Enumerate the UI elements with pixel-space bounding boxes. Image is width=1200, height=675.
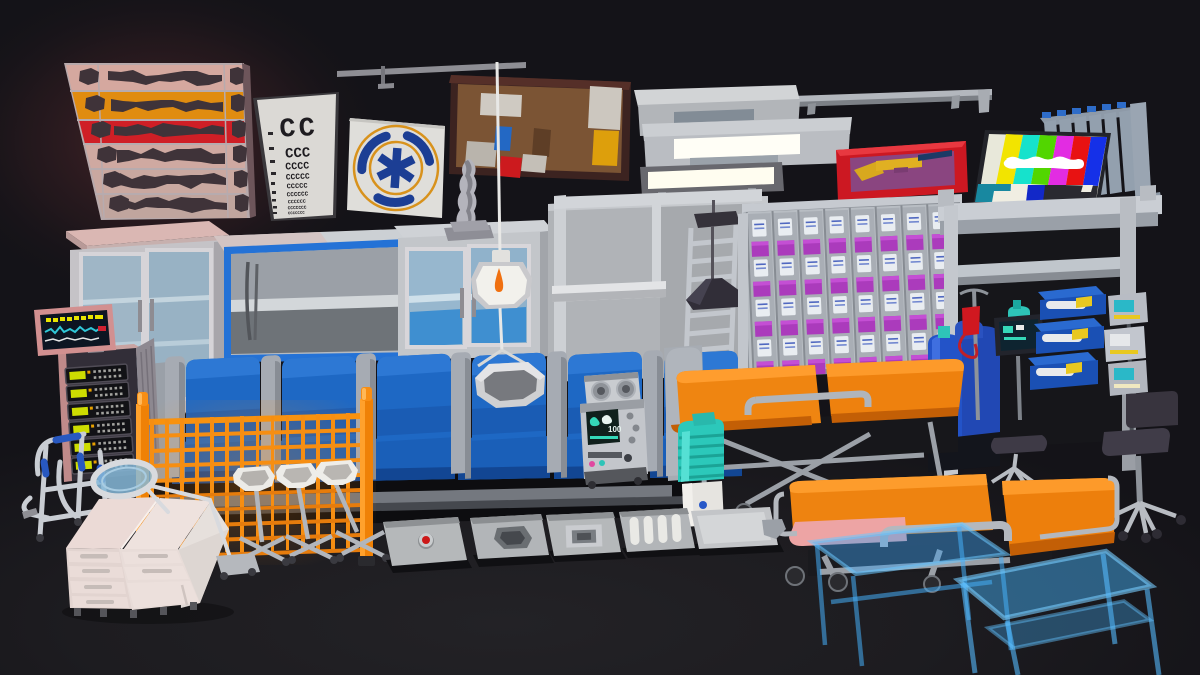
svg-text:CCCCCCC: CCCCCCC	[288, 205, 307, 212]
svg-text:CC: CC	[279, 114, 319, 146]
svg-text:CCC: CCC	[285, 145, 311, 162]
svg-text:CCCCC: CCCCC	[286, 172, 311, 182]
svg-text:CCCCCCC: CCCCCCC	[288, 212, 306, 217]
svg-text:CCCCCC: CCCCCC	[288, 199, 306, 206]
svg-text:100: 100	[608, 425, 622, 434]
svg-text:CCCCCC: CCCCCC	[287, 190, 309, 198]
